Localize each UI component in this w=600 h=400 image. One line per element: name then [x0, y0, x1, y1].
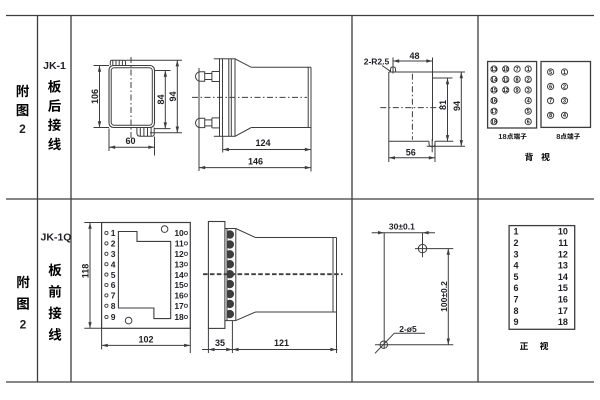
svg-text:94: 94: [168, 91, 178, 101]
svg-text:1: 1: [527, 67, 530, 73]
svg-text:14: 14: [558, 272, 568, 282]
svg-text:17: 17: [174, 301, 184, 311]
svg-text:102: 102: [138, 334, 153, 344]
svg-text:7: 7: [514, 295, 519, 305]
svg-text:2: 2: [111, 239, 116, 249]
svg-text:18: 18: [498, 132, 506, 141]
svg-text:12: 12: [503, 88, 509, 94]
svg-text:48: 48: [409, 51, 419, 61]
svg-text:3: 3: [111, 249, 116, 259]
svg-text:84: 84: [156, 94, 166, 104]
svg-text:12: 12: [174, 249, 184, 259]
svg-text:7: 7: [549, 99, 552, 105]
svg-text:16: 16: [558, 295, 568, 305]
svg-text:8: 8: [514, 306, 519, 316]
svg-text:2-R2.5: 2-R2.5: [364, 56, 390, 66]
svg-text:17: 17: [558, 306, 568, 316]
svg-text:5: 5: [111, 270, 116, 280]
svg-text:35: 35: [215, 338, 225, 348]
svg-text:15: 15: [558, 283, 568, 293]
svg-text:30±0.1: 30±0.1: [389, 222, 415, 232]
svg-text:13: 13: [558, 261, 568, 271]
svg-text:16: 16: [491, 99, 497, 105]
svg-text:11: 11: [503, 77, 509, 83]
svg-text:14: 14: [174, 270, 184, 280]
svg-text:8: 8: [556, 132, 560, 141]
svg-text:8: 8: [111, 301, 116, 311]
svg-text:4: 4: [563, 113, 566, 119]
svg-text:18: 18: [558, 317, 568, 327]
svg-text:5: 5: [514, 272, 519, 282]
svg-text:2: 2: [20, 318, 27, 332]
svg-text:3: 3: [527, 88, 530, 94]
svg-text:10: 10: [558, 227, 568, 237]
svg-text:3: 3: [514, 249, 519, 259]
svg-text:10: 10: [503, 67, 509, 73]
svg-text:9: 9: [111, 312, 116, 322]
svg-text:JK-1Q: JK-1Q: [41, 232, 72, 244]
svg-text:4: 4: [514, 261, 519, 271]
svg-text:1: 1: [563, 70, 566, 76]
svg-text:12: 12: [558, 249, 568, 259]
svg-text:16: 16: [174, 291, 184, 301]
svg-text:5: 5: [527, 109, 530, 115]
svg-text:2: 2: [563, 84, 566, 90]
svg-text:1: 1: [514, 227, 519, 237]
svg-text:9: 9: [516, 88, 519, 94]
svg-text:7: 7: [516, 67, 519, 73]
svg-text:8: 8: [516, 77, 519, 83]
svg-text:121: 121: [274, 338, 289, 348]
svg-text:106: 106: [90, 89, 100, 104]
svg-text:10: 10: [174, 228, 184, 238]
svg-text:JK-1: JK-1: [43, 60, 66, 72]
svg-text:4: 4: [111, 259, 116, 269]
svg-text:6: 6: [111, 280, 116, 290]
svg-text:2: 2: [19, 122, 26, 136]
svg-text:146: 146: [248, 156, 263, 166]
svg-text:15: 15: [491, 88, 497, 94]
svg-text:7: 7: [111, 291, 116, 301]
svg-text:2: 2: [514, 238, 519, 248]
svg-text:13: 13: [491, 67, 497, 73]
svg-text:1: 1: [111, 228, 116, 238]
svg-text:94: 94: [452, 101, 462, 111]
svg-text:15: 15: [174, 280, 184, 290]
svg-text:81: 81: [438, 100, 448, 110]
svg-text:13: 13: [174, 259, 184, 269]
svg-text:6: 6: [514, 283, 519, 293]
svg-text:11: 11: [558, 238, 568, 248]
svg-text:124: 124: [255, 138, 270, 148]
svg-text:5: 5: [549, 70, 552, 76]
svg-text:6: 6: [527, 120, 530, 126]
svg-text:18: 18: [174, 312, 184, 322]
svg-text:18: 18: [491, 120, 497, 126]
svg-text:2: 2: [527, 77, 530, 83]
svg-text:2-ø5: 2-ø5: [399, 324, 417, 334]
svg-text:9: 9: [514, 317, 519, 327]
svg-text:4: 4: [527, 99, 530, 105]
svg-text:100±0.2: 100±0.2: [439, 281, 449, 312]
svg-text:118: 118: [81, 264, 91, 279]
svg-text:3: 3: [563, 99, 566, 105]
svg-text:11: 11: [175, 239, 184, 249]
svg-text:8: 8: [549, 113, 552, 119]
svg-text:14: 14: [491, 77, 497, 83]
svg-text:56: 56: [406, 147, 416, 157]
svg-text:60: 60: [125, 136, 135, 146]
svg-text:6: 6: [549, 84, 552, 90]
svg-text:17: 17: [491, 109, 497, 115]
